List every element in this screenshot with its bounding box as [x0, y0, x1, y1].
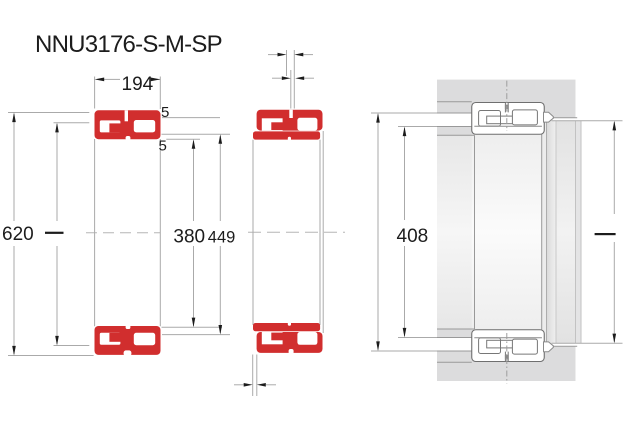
svg-text:NNU3176-S-M-SP: NNU3176-S-M-SP: [35, 31, 222, 58]
svg-text:449: 449: [208, 229, 236, 247]
svg-text:194: 194: [122, 74, 154, 95]
svg-text:5: 5: [159, 138, 167, 155]
svg-text:380: 380: [173, 227, 205, 248]
svg-text:620: 620: [2, 224, 34, 245]
svg-text:408: 408: [397, 226, 429, 247]
svg-text:5: 5: [161, 104, 169, 121]
